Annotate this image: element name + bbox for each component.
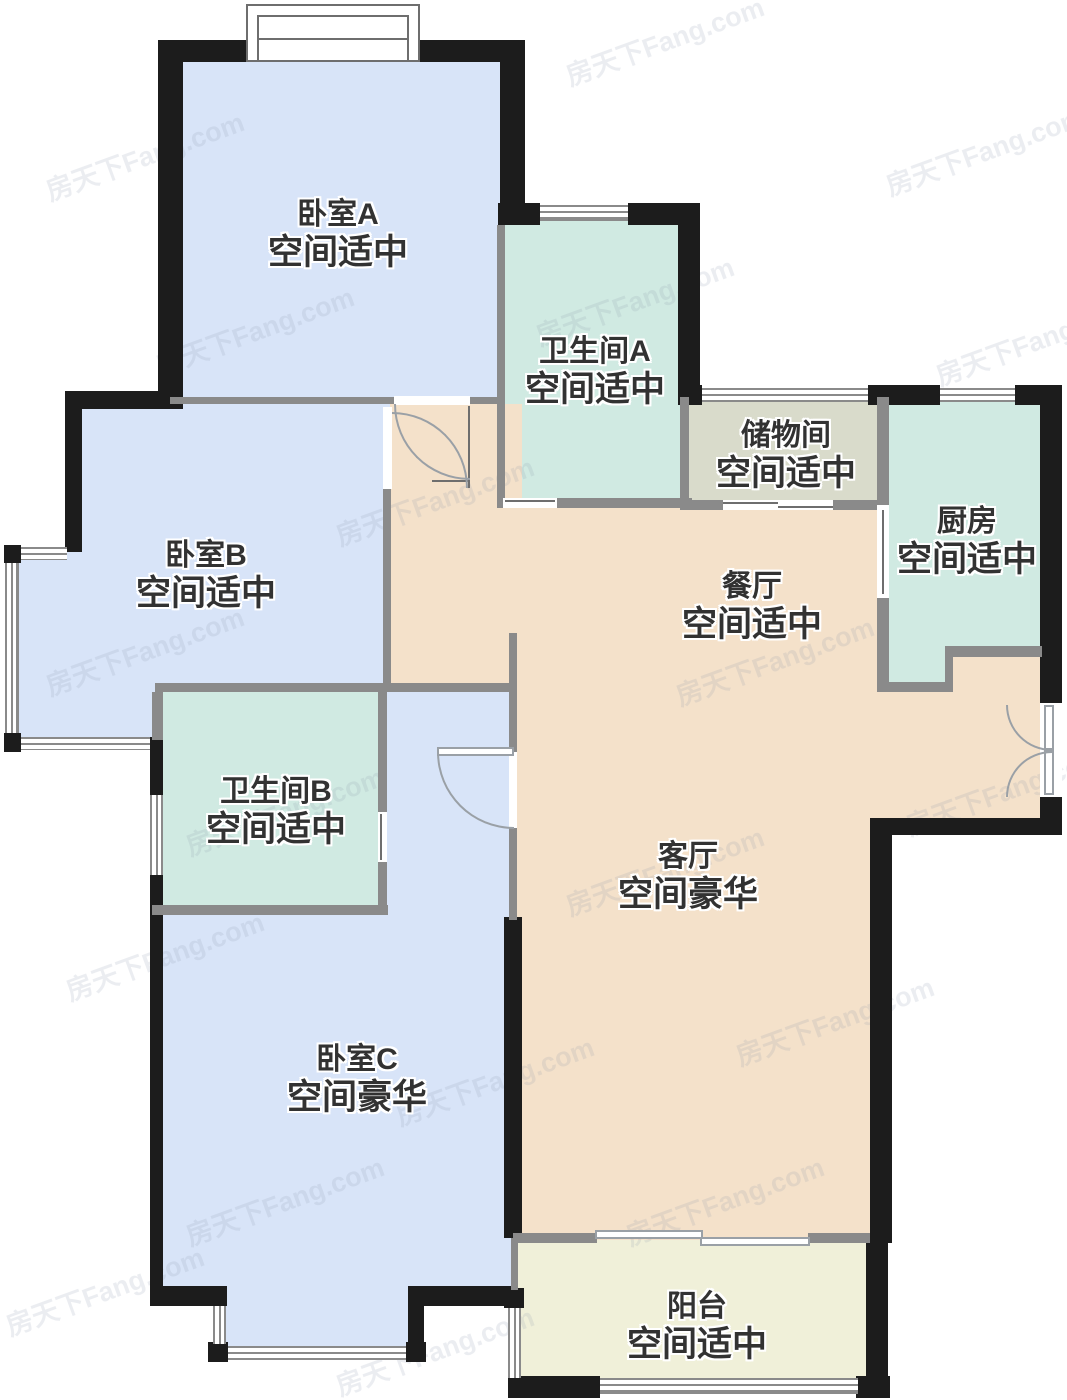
room-label-dining: 餐厅 空间适中 xyxy=(682,568,822,644)
window xyxy=(5,563,19,733)
wall xyxy=(508,1376,600,1398)
wall xyxy=(870,818,1062,835)
wall xyxy=(870,833,892,1243)
door-opening xyxy=(383,407,392,489)
room-name: 卧室B xyxy=(136,537,276,575)
wall xyxy=(511,1238,518,1290)
room-entry-floor-left xyxy=(875,685,952,825)
wall xyxy=(150,875,163,1290)
wall xyxy=(509,828,517,920)
door-leaf-line xyxy=(380,814,382,860)
sliding-door-line xyxy=(723,502,778,504)
wall xyxy=(208,1342,228,1362)
room-label-bedroom-c: 卧室C 空间豪华 xyxy=(287,1041,427,1117)
wall xyxy=(680,397,689,508)
room-status: 空间适中 xyxy=(627,1326,767,1364)
floor-plan: 房天下Fang.com 房天下Fang.com 房天下Fang.com 房天下F… xyxy=(0,0,1067,1400)
room-label-living: 客厅 空间豪华 xyxy=(618,838,758,914)
room-label-bathroom-a: 卫生间A 空间适中 xyxy=(525,333,665,409)
wall xyxy=(383,488,391,683)
wall xyxy=(470,397,500,404)
wall xyxy=(158,40,252,62)
sliding-door-line xyxy=(882,510,884,594)
room-label-bedroom-b: 卧室B 空间适中 xyxy=(136,537,276,613)
room-name: 卧室A xyxy=(268,196,408,234)
wall xyxy=(513,1233,597,1243)
wall xyxy=(158,40,183,395)
wall xyxy=(408,1286,513,1306)
wall xyxy=(557,498,692,508)
sliding-door-panel xyxy=(700,1237,810,1246)
room-status: 空间豪华 xyxy=(618,876,758,914)
room-name: 卫生间B xyxy=(206,773,346,811)
window xyxy=(702,388,868,402)
wall xyxy=(678,203,700,397)
wall xyxy=(4,733,21,752)
wall xyxy=(877,598,889,690)
wall xyxy=(945,646,1042,657)
room-label-kitchen: 厨房 空间适中 xyxy=(897,503,1037,579)
wall xyxy=(378,692,387,812)
wall xyxy=(504,1288,524,1308)
wall xyxy=(152,692,163,740)
wall xyxy=(680,500,723,510)
wall xyxy=(150,1286,227,1306)
wall xyxy=(378,862,387,910)
window xyxy=(213,1306,226,1344)
wall xyxy=(65,393,82,552)
room-name: 卧室C xyxy=(287,1041,427,1079)
wall xyxy=(500,40,525,218)
room-bedroom-c-bay-floor xyxy=(222,1290,412,1350)
window xyxy=(21,547,67,560)
room-status: 空间适中 xyxy=(682,606,822,644)
wall xyxy=(1040,385,1062,703)
wall xyxy=(414,40,500,62)
room-name: 餐厅 xyxy=(682,568,822,606)
window xyxy=(228,1346,406,1360)
room-status: 空间适中 xyxy=(525,371,665,409)
window xyxy=(21,737,150,750)
wall xyxy=(152,905,388,915)
window xyxy=(600,1378,858,1394)
wall xyxy=(150,737,163,795)
wall xyxy=(808,1233,870,1243)
wall xyxy=(856,1376,890,1398)
wall xyxy=(408,1306,424,1344)
room-status: 空间适中 xyxy=(897,541,1037,579)
window xyxy=(940,388,1015,402)
room-status: 空间适中 xyxy=(206,811,346,849)
watermark: 房天下Fang.com xyxy=(880,96,1067,204)
wall xyxy=(877,682,953,692)
room-name: 阳台 xyxy=(627,1288,767,1326)
room-name: 卫生间A xyxy=(525,333,665,371)
window xyxy=(508,1308,521,1378)
room-name: 客厅 xyxy=(618,838,758,876)
wall xyxy=(504,917,522,1238)
wall xyxy=(406,1342,426,1362)
sliding-door-line xyxy=(778,506,833,508)
wall xyxy=(4,545,21,563)
room-label-storage: 储物间 空间适中 xyxy=(716,417,856,493)
wall xyxy=(498,203,540,225)
watermark: 房天下Fang.com xyxy=(930,286,1067,394)
window xyxy=(540,205,628,221)
wall xyxy=(866,1243,888,1396)
wall xyxy=(877,397,889,505)
bay-window-glass-line xyxy=(259,38,407,40)
room-status: 空间适中 xyxy=(268,234,408,272)
wall xyxy=(65,391,183,409)
window xyxy=(150,795,163,875)
wall xyxy=(170,397,394,404)
door-leaf-line xyxy=(505,500,555,502)
room-label-bedroom-a: 卧室A 空间适中 xyxy=(268,196,408,272)
room-label-bathroom-b: 卫生间B 空间适中 xyxy=(206,773,346,849)
watermark: 房天下Fang.com xyxy=(560,0,769,93)
room-name: 厨房 xyxy=(897,503,1037,541)
wall xyxy=(509,633,517,752)
wall xyxy=(497,225,505,498)
sliding-door-panel xyxy=(595,1230,703,1239)
room-status: 空间豪华 xyxy=(287,1079,427,1117)
room-status: 空间适中 xyxy=(716,455,856,493)
room-label-balcony: 阳台 空间适中 xyxy=(627,1288,767,1364)
room-name: 储物间 xyxy=(716,417,856,455)
wall xyxy=(155,683,517,692)
room-status: 空间适中 xyxy=(136,575,276,613)
